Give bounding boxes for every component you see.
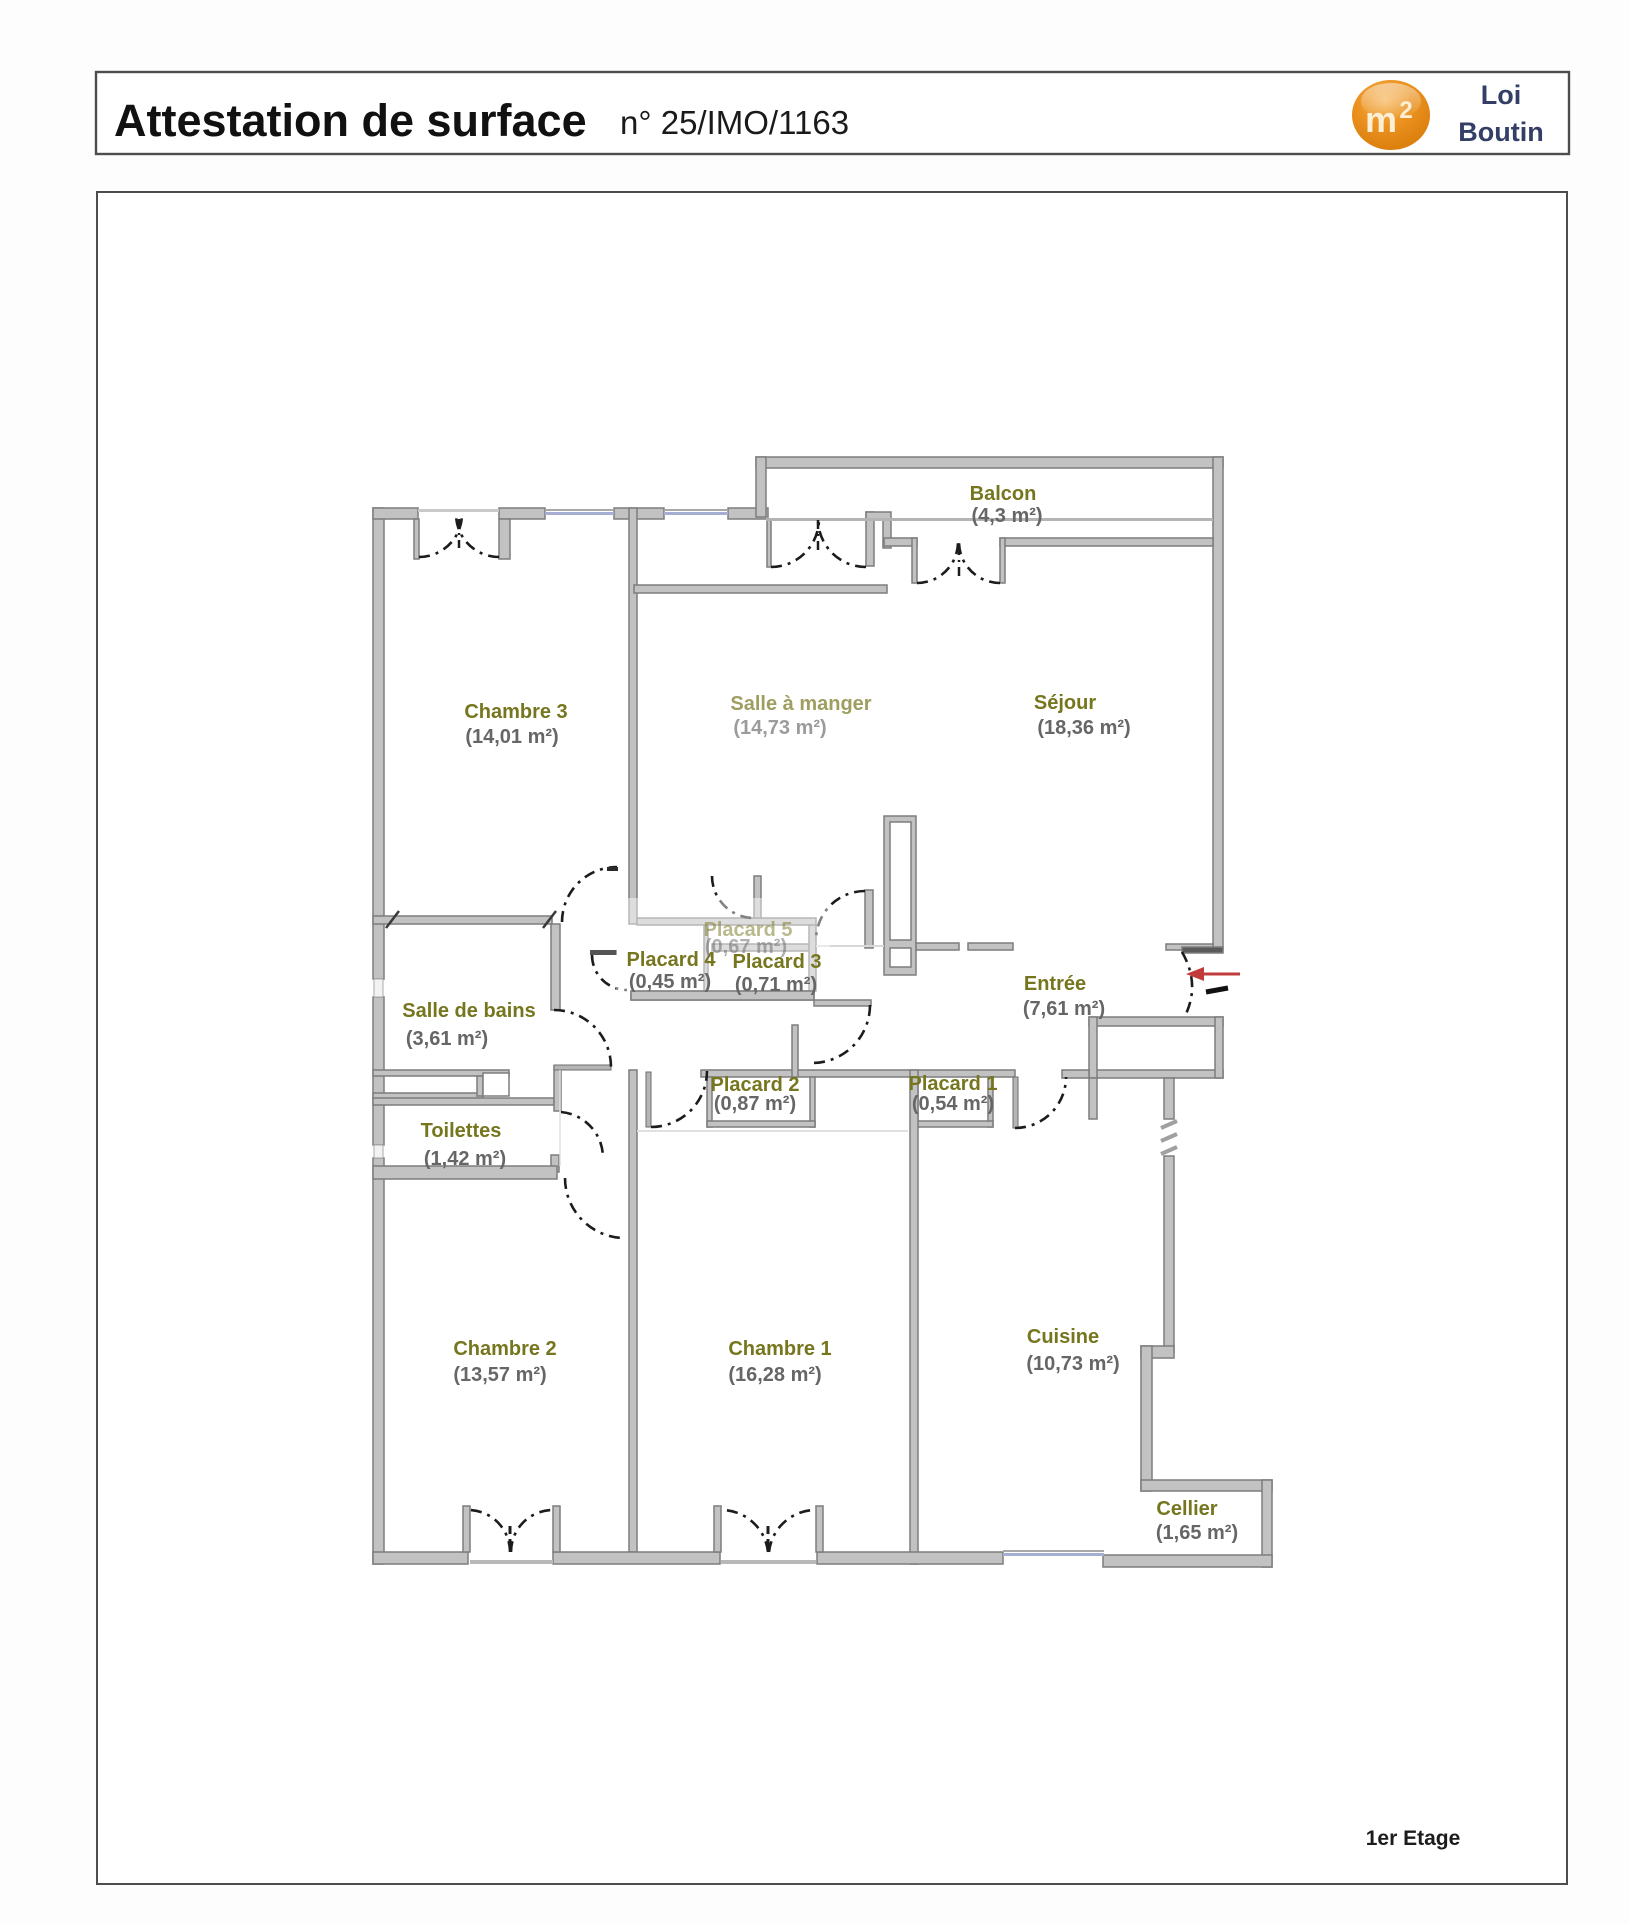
svg-text:Toilettes: Toilettes <box>421 1120 502 1142</box>
svg-text:(18,36 m²): (18,36 m²) <box>1037 717 1130 739</box>
svg-text:Salle à manger: Salle à manger <box>730 693 871 715</box>
svg-text:(3,61 m²): (3,61 m²) <box>406 1028 488 1050</box>
svg-text:Boutin: Boutin <box>1458 117 1543 147</box>
svg-text:(13,57 m²): (13,57 m²) <box>453 1364 546 1386</box>
svg-text:Chambre 3: Chambre 3 <box>464 701 567 723</box>
svg-text:Balcon: Balcon <box>970 483 1037 505</box>
svg-text:(16,28 m²): (16,28 m²) <box>728 1364 821 1386</box>
svg-text:Chambre 2: Chambre 2 <box>453 1338 556 1360</box>
svg-text:Salle de bains: Salle de bains <box>402 1000 535 1022</box>
svg-text:Cellier: Cellier <box>1156 1498 1217 1520</box>
svg-text:m: m <box>1365 99 1397 140</box>
svg-text:Cuisine: Cuisine <box>1027 1326 1099 1348</box>
svg-text:(7,61 m²): (7,61 m²) <box>1023 998 1105 1020</box>
svg-text:(14,01 m²): (14,01 m²) <box>465 726 558 748</box>
svg-text:n° 25/IMO/1163: n° 25/IMO/1163 <box>620 104 849 141</box>
svg-text:Placard 4: Placard 4 <box>627 949 717 971</box>
svg-text:(0,87 m²): (0,87 m²) <box>714 1093 796 1115</box>
svg-text:Placard 1: Placard 1 <box>909 1073 998 1095</box>
svg-text:(0,45 m²): (0,45 m²) <box>629 971 711 993</box>
svg-text:Loi: Loi <box>1481 80 1522 110</box>
svg-text:(1,42 m²): (1,42 m²) <box>424 1148 506 1170</box>
svg-text:Séjour: Séjour <box>1034 692 1096 714</box>
svg-text:(0,67 m²): (0,67 m²) <box>705 936 787 958</box>
svg-text:(1,65 m²): (1,65 m²) <box>1156 1522 1238 1544</box>
svg-text:Entrée: Entrée <box>1024 973 1086 995</box>
svg-text:(0,71 m²): (0,71 m²) <box>735 974 817 996</box>
svg-text:(0,54 m²): (0,54 m²) <box>912 1093 994 1115</box>
svg-text:(4,3 m²): (4,3 m²) <box>971 505 1042 527</box>
svg-text:(10,73 m²): (10,73 m²) <box>1026 1353 1119 1375</box>
svg-text:1er Etage: 1er Etage <box>1366 1827 1461 1850</box>
svg-text:Attestation de surface: Attestation de surface <box>114 95 587 146</box>
svg-text:Chambre 1: Chambre 1 <box>728 1338 831 1360</box>
svg-text:(14,73 m²): (14,73 m²) <box>733 717 826 739</box>
svg-text:2: 2 <box>1399 97 1412 124</box>
